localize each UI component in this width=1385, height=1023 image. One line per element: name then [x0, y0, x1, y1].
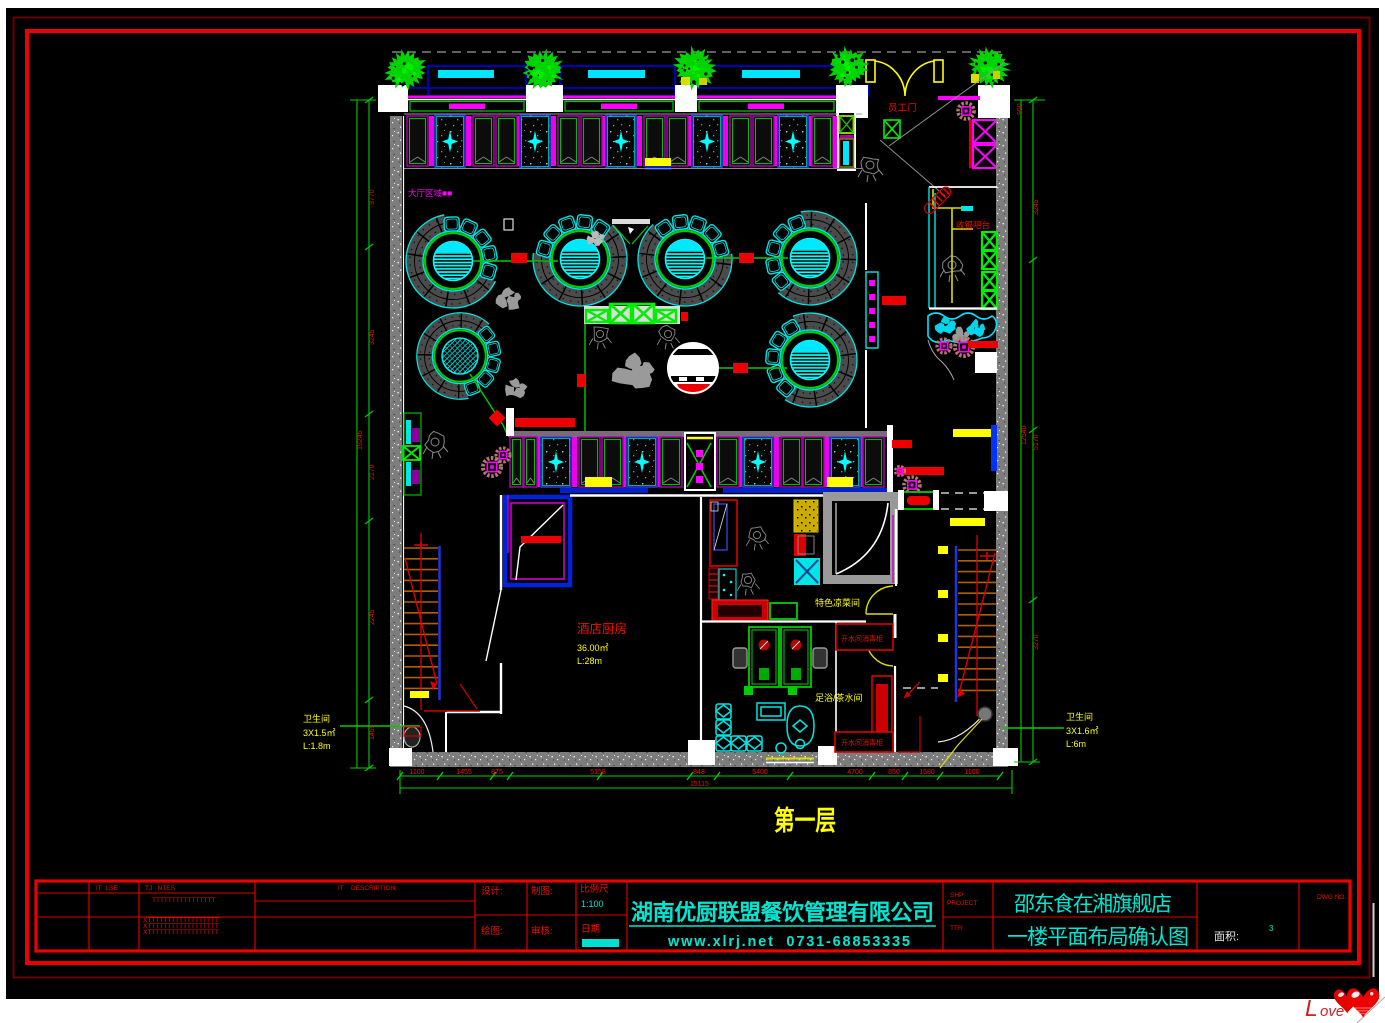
svg-text:1:100: 1:100	[581, 899, 604, 909]
svg-text:酒店厨房: 酒店厨房	[577, 621, 627, 636]
svg-text:足浴/茶水间: 足浴/茶水间	[815, 692, 863, 703]
svg-text:12540: 12540	[1021, 425, 1028, 445]
svg-text:3X1.5㎡: 3X1.5㎡	[303, 728, 336, 738]
svg-text:L:1.8m: L:1.8m	[303, 741, 331, 751]
svg-text:SHP: SHP	[950, 892, 963, 899]
svg-text:L: L	[1305, 995, 1318, 1021]
svg-text:卫生间: 卫生间	[1066, 711, 1093, 722]
svg-text:制图:: 制图:	[531, 885, 553, 897]
svg-text:848: 848	[693, 769, 705, 776]
svg-text:3770: 3770	[369, 189, 376, 205]
svg-text:3245: 3245	[369, 329, 376, 345]
svg-text:DWG NO.: DWG NO.	[1317, 894, 1346, 901]
svg-text:3: 3	[1269, 924, 1274, 933]
svg-text:L:28m: L:28m	[577, 656, 602, 666]
svg-text:湖南优厨联盟餐饮管理有限公司: 湖南优厨联盟餐饮管理有限公司	[631, 900, 934, 925]
svg-text:L:6m: L:6m	[1066, 739, 1086, 749]
svg-text:员工门: 员工门	[888, 102, 917, 114]
svg-text:1455: 1455	[369, 724, 376, 740]
svg-text:3245: 3245	[1033, 199, 1040, 215]
svg-text:36.00㎡: 36.00㎡	[577, 643, 609, 653]
svg-text:绘图:: 绘图:	[481, 925, 503, 937]
svg-text:1100: 1100	[964, 769, 979, 776]
svg-text:3X1.6㎡: 3X1.6㎡	[1066, 726, 1099, 736]
svg-text:3270: 3270	[1033, 634, 1040, 650]
svg-text:2245: 2245	[369, 609, 376, 625]
svg-text:XTTTTTTTTTTTTTTTTTT: XTTTTTTTTTTTTTTTTTT	[143, 929, 219, 936]
svg-text:大厅区域■■: 大厅区域■■	[408, 188, 452, 198]
svg-text:开水间消毒柜: 开水间消毒柜	[841, 634, 883, 643]
svg-text:1580: 1580	[919, 769, 935, 776]
svg-text:1455: 1455	[456, 769, 472, 776]
svg-text:IT LSE: IT LSE	[96, 885, 118, 892]
svg-text:特色凉菜间: 特色凉菜间	[815, 597, 860, 608]
svg-text:面积:: 面积:	[1214, 930, 1239, 943]
svg-text:TTR: TTR	[950, 925, 963, 932]
svg-text:比例尺: 比例尺	[580, 883, 609, 895]
svg-text:www.xlrj.net 0731-68853335: www.xlrj.net 0731-68853335	[667, 934, 910, 950]
svg-text:日期: 日期	[581, 924, 600, 935]
svg-text:TJ NTES: TJ NTES	[145, 885, 176, 892]
svg-text:PROJECT: PROJECT	[947, 900, 977, 907]
svg-text:950: 950	[1017, 103, 1024, 115]
svg-text:5170: 5170	[1033, 434, 1040, 450]
svg-text:卫生间: 卫生间	[303, 713, 330, 724]
svg-text:15115: 15115	[690, 781, 709, 788]
svg-text:1100: 1100	[409, 769, 424, 776]
svg-text:审核:: 审核:	[531, 925, 553, 937]
svg-text:850: 850	[888, 769, 900, 776]
svg-text:TTTTTTTTTTTTTTTT: TTTTTTTTTTTTTTTT	[152, 897, 216, 904]
svg-text:收银吧台: 收银吧台	[956, 220, 990, 230]
svg-text:4700: 4700	[847, 769, 863, 776]
svg-text:15245: 15245	[357, 430, 364, 450]
svg-text:875: 875	[491, 769, 503, 776]
svg-text:设计:: 设计:	[481, 885, 503, 897]
svg-text:5158: 5158	[590, 769, 606, 776]
svg-text:一楼平面布局确认图: 一楼平面布局确认图	[1007, 926, 1189, 949]
svg-text:IT DESCRIPTION: IT DESCRIPTION	[338, 885, 396, 892]
svg-text:开水间消毒柜: 开水间消毒柜	[841, 738, 883, 747]
svg-text:邵东食在湘旗舰店: 邵东食在湘旗舰店	[1014, 893, 1172, 916]
svg-text:2170: 2170	[369, 464, 376, 480]
svg-text:第一层: 第一层	[774, 805, 836, 836]
svg-text:5400: 5400	[752, 769, 768, 776]
